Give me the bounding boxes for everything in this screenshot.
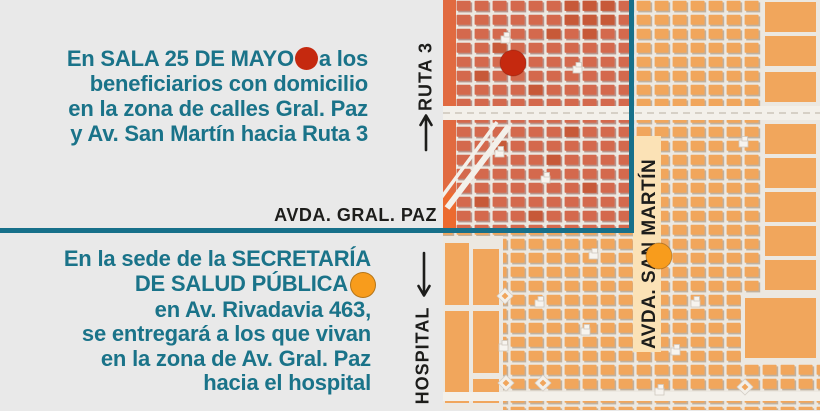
notice-line: beneficiarios con domicilio [67,71,368,96]
notice-line: en Av. Rivadavia 463, [64,298,371,323]
notice-line: hacia el hospital [64,371,371,396]
notice-line: se entregará a los que vivan [64,322,371,347]
red-marker-dot-inline [295,47,318,70]
up-arrow-icon [419,112,433,152]
notice-line: en la zona de calles Gral. Paz [67,96,368,121]
gral-paz-label: AVDA. GRAL. PAZ [274,205,437,226]
notice-line: En SALA 25 DE MAYO a los [67,46,368,71]
secretaria-map-marker [646,243,672,269]
gral-paz-street-line [0,228,634,233]
notice-text: DE SALUD PÚBLICA [135,272,348,297]
notice-line: DE SALUD PÚBLICA [64,272,371,298]
notice-text: En SALA 25 DE MAYO [67,46,294,71]
hospital-label: HOSPITAL [413,301,434,411]
notice-line: En la sede de la SECRETARÍA [64,247,371,272]
secretaria-notice: En la sede de la SECRETARÍA DE SALUD PÚB… [64,247,371,396]
notice-line: en la zona de Av. Gral. Paz [64,347,371,372]
sala-25-map-marker [500,50,526,76]
down-arrow-icon [417,251,431,299]
notice-text: a los [319,46,368,71]
ruta3-label: RUTA 3 [416,37,437,117]
notice-line: y Av. San Martín hacia Ruta 3 [67,121,368,146]
san-martin-street-line [629,0,634,233]
sala-25-notice: En SALA 25 DE MAYO a los beneficiarios c… [67,46,368,146]
orange-marker-dot-inline [350,272,376,298]
